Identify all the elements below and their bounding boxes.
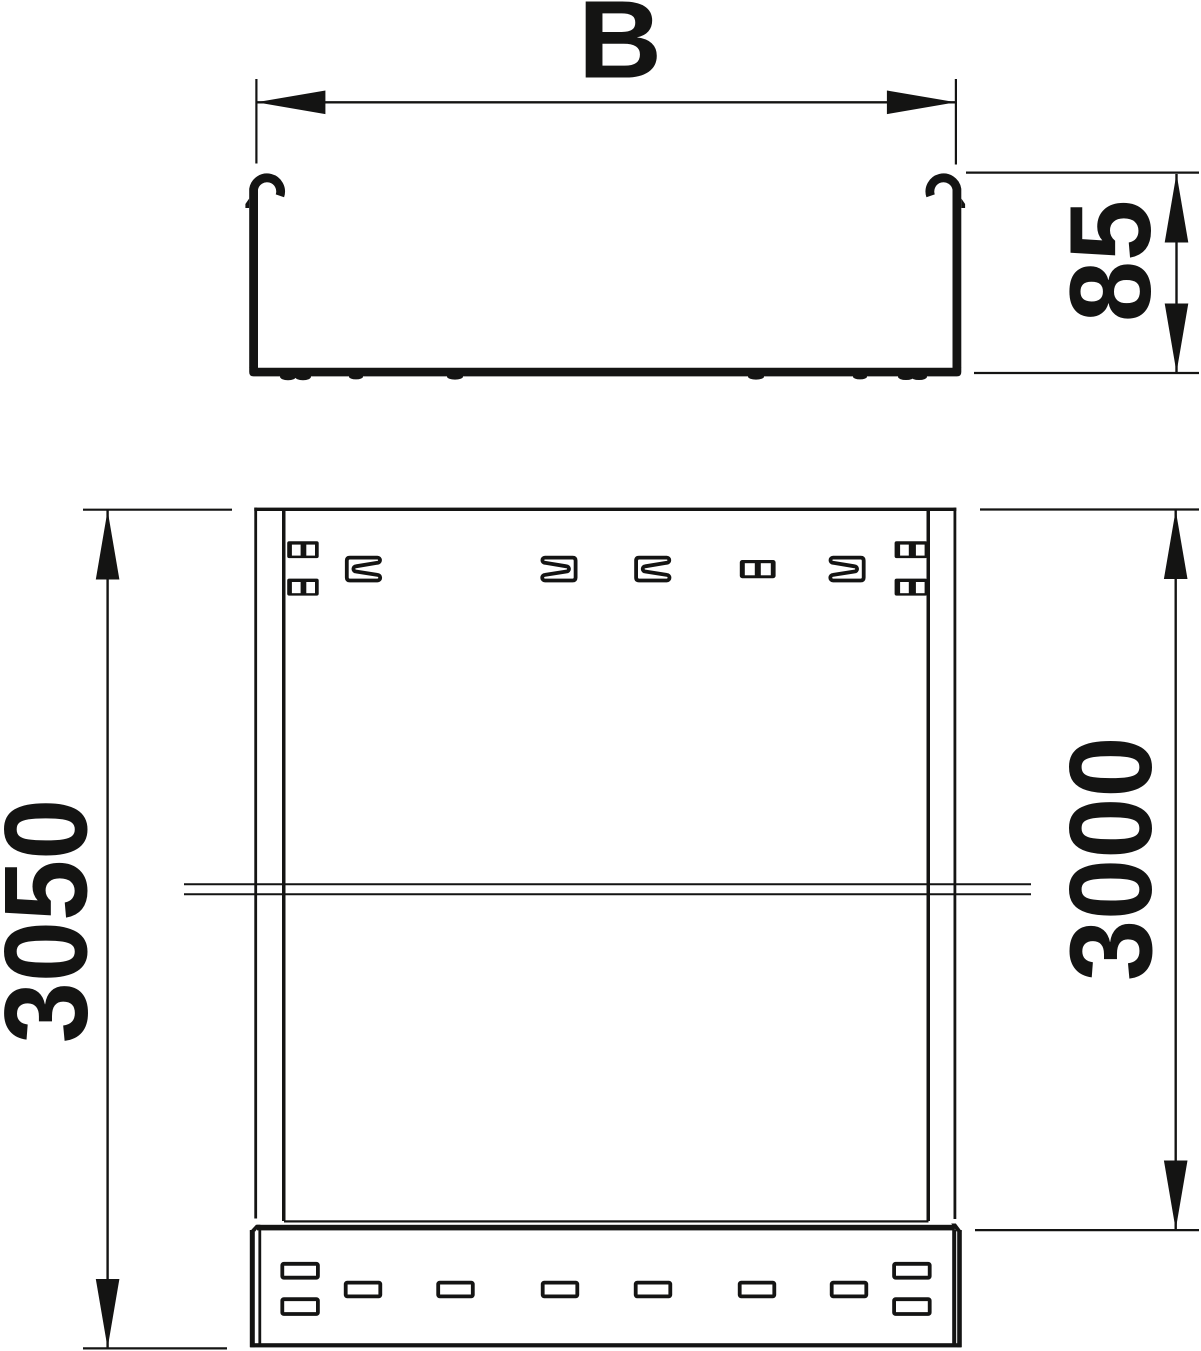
svg-text:B: B — [578, 0, 662, 102]
svg-text:3050: 3050 — [0, 799, 112, 1044]
svg-text:85: 85 — [1045, 200, 1174, 322]
svg-text:3000: 3000 — [1046, 736, 1177, 981]
